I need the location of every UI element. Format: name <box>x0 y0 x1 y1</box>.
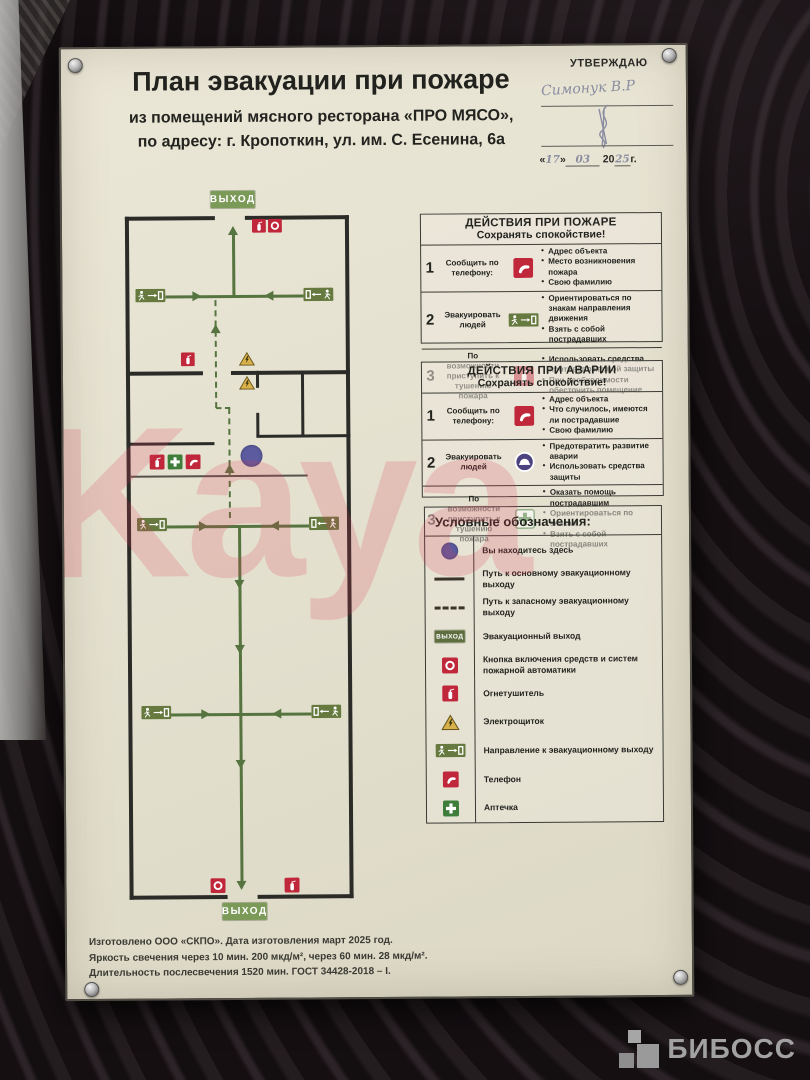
legend-row: Огнетушитель <box>426 678 662 708</box>
handwritten-day: 17 <box>545 154 560 166</box>
exit-sign-bottom: ВЫХОД <box>223 903 267 920</box>
legend-row: Кнопка включения средств и систем пожарн… <box>426 649 662 679</box>
bullet: Место возникновения пожара <box>540 256 658 278</box>
legend-row: Электрощиток <box>426 707 662 737</box>
counter-line <box>130 474 308 477</box>
page-title: План эвакуации при пожаре <box>91 64 551 98</box>
route-arrow-left <box>272 709 281 719</box>
exit-direction-sign <box>137 517 167 531</box>
wall-corner-highlight <box>0 0 46 740</box>
year-suffix: г. <box>630 153 636 165</box>
bullet: Что случилось, имеются ли пострадавшие <box>541 404 659 426</box>
biboss-logo-text: БИБОСС <box>667 1033 796 1065</box>
exit-sign-top: ВЫХОД <box>211 191 255 208</box>
legend-label: Эвакуационный выход <box>475 630 662 642</box>
wall-segment <box>125 216 215 221</box>
legend-row: ВЫХОД Эвакуационный выход <box>426 621 662 651</box>
row-label: Сообщить по телефону: <box>439 406 507 426</box>
row-label: Эвакуировать людей <box>440 452 508 472</box>
legend-label: Электрощиток <box>475 715 662 727</box>
legend-body: Вы находитесь здесь Путь к основному эва… <box>425 535 663 823</box>
bullet: Свою фамилию <box>540 277 658 288</box>
wall-segment <box>130 895 228 900</box>
exit-sign-icon: ВЫХОД <box>426 622 475 651</box>
handwritten-month: 03 <box>575 154 590 166</box>
wall-segment <box>231 370 350 374</box>
wall-segment <box>345 215 354 898</box>
row-bullets: Адрес объекта Место возникновения пожара… <box>540 246 661 288</box>
wall-segment <box>256 434 350 438</box>
bullet: Использовать средства защиты <box>542 461 660 483</box>
electrical-warning-icon <box>426 708 475 737</box>
biboss-watermark: БИБОСС <box>619 1030 796 1068</box>
approval-label: УТВЕРЖДАЮ <box>539 57 679 70</box>
dashed-route-line-icon <box>426 594 475 623</box>
legend-label: Направление к эвакуационному выходу <box>476 744 663 756</box>
biboss-logo-icon <box>619 1030 659 1068</box>
route-arrow-down <box>237 881 247 890</box>
fire-panel-row-2: 2 Эвакуировать людей Ориентироваться по … <box>421 291 661 350</box>
phone-icon <box>427 765 476 794</box>
wall-segment <box>301 371 304 435</box>
fire-alarm-button-icon <box>210 878 225 893</box>
electrical-warning-icon <box>239 352 255 366</box>
fire-alarm-button-icon <box>426 651 475 680</box>
legend-label: Путь к запасному эвакуационному выходу <box>475 595 662 618</box>
wall-segment <box>256 371 259 388</box>
exit-direction-sign-icon <box>507 312 541 326</box>
route-arrow-right <box>201 709 210 719</box>
fire-panel-subtitle: Сохранять спокойствие! <box>423 228 659 242</box>
screw-bottom-right <box>673 970 688 985</box>
wall-segment <box>125 217 134 900</box>
manufacturer-info: Изготовлено ООО «СКПО». Дата изготовлени… <box>89 932 519 982</box>
photo-of-evacuation-plan: План эвакуации при пожаре из помещений м… <box>0 0 810 1080</box>
fire-panel-header: ДЕЙСТВИЯ ПРИ ПОЖАРЕ Сохранять спокойстви… <box>421 213 661 246</box>
phone-icon <box>186 454 201 469</box>
evacuation-plan-poster: План эвакуации при пожаре из помещений м… <box>59 43 695 1001</box>
you-are-here-dot <box>425 536 474 565</box>
row-bullets: Предотвратить развитие аварии Использова… <box>541 441 662 483</box>
bullet: Ориентироваться по знакам направления дв… <box>540 293 658 325</box>
signature-flourish <box>591 103 617 149</box>
phone-icon <box>507 406 541 426</box>
exit-direction-sign <box>311 704 341 718</box>
fire-alarm-button-icon <box>268 219 282 233</box>
protective-helmet-icon <box>508 452 542 472</box>
fire-extinguisher-icon <box>181 352 195 366</box>
route-arrow-right <box>192 291 201 301</box>
exit-direction-sign <box>141 705 171 719</box>
row-bullets: Адрес объекта Что случилось, имеются ли … <box>541 394 662 436</box>
accident-panel-header: ДЕЙСТВИЯ ПРИ АВАРИИ Сохранять спокойстви… <box>422 361 662 394</box>
row-number: 2 <box>423 454 440 471</box>
phone-icon <box>506 258 540 278</box>
dashed-route-arrow-up <box>225 464 235 473</box>
legend-label: Вы находитесь здесь <box>474 544 661 556</box>
wall-segment <box>256 413 259 437</box>
dashed-route-line <box>214 300 217 408</box>
subtitle-line-1: из помещений мясного ресторана «ПРО МЯСО… <box>91 104 551 131</box>
legend-title: Условные обозначения: <box>425 506 661 537</box>
exit-direction-sign <box>309 516 339 530</box>
screw-bottom-left <box>84 982 99 997</box>
fire-actions-panel: ДЕЙСТВИЯ ПРИ ПОЖАРЕ Сохранять спокойстви… <box>420 212 663 344</box>
route-arrow-right <box>199 521 208 531</box>
legend-row: Путь к основному эвакуационному выходу <box>425 564 661 594</box>
page-subtitle: из помещений мясного ресторана «ПРО МЯСО… <box>91 104 551 155</box>
first-aid-kit-icon <box>427 794 476 823</box>
electrical-warning-icon <box>239 376 255 390</box>
approval-block: УТВЕРЖДАЮ Симонук В.Р «17»03 2025г. <box>539 57 679 70</box>
accident-actions-panel: ДЕЙСТВИЯ ПРИ АВАРИИ Сохранять спокойстви… <box>421 360 664 498</box>
legend-row: Путь к запасному эвакуационному выходу <box>426 592 662 622</box>
fire-extinguisher-icon <box>252 219 266 233</box>
route-arrow-down <box>235 645 245 654</box>
bullet: Предотвратить развитие аварии <box>541 441 659 463</box>
footer-line-3: Длительность послесвечения 1520 мин. ГОС… <box>89 963 519 982</box>
route-line <box>231 234 234 296</box>
handwritten-signature: Симонук В.Р <box>541 75 676 99</box>
accident-panel-row-1: 1 Сообщить по телефону: Адрес объекта Чт… <box>422 392 662 440</box>
solid-route-line-icon <box>425 565 474 594</box>
legend-row: Направление к эвакуационному выходу <box>427 735 663 765</box>
legend-label: Телефон <box>476 773 663 785</box>
fire-panel-row-1: 1 Сообщить по телефону: Адрес объекта Ме… <box>421 244 661 292</box>
legend-row: Аптечка <box>427 792 663 822</box>
subtitle-line-2: по адресу: г. Кропоткин, ул. им. С. Есен… <box>91 128 551 155</box>
first-aid-kit-icon <box>168 454 183 469</box>
year-prefix: 20 <box>603 153 615 165</box>
wall-segment <box>126 442 214 446</box>
you-are-here-dot <box>240 445 262 467</box>
bullet: Свою фамилию <box>541 425 659 436</box>
route-line <box>170 712 311 716</box>
legend-label: Кнопка включения средств и систем пожарн… <box>475 653 662 676</box>
dashed-route-arrow-up <box>211 324 221 333</box>
approval-date: «17»03 2025г. <box>539 153 679 167</box>
screw-top-left <box>68 58 83 73</box>
exit-direction-sign <box>135 288 165 302</box>
accident-panel-row-2: 2 Эвакуировать людей Предотвратить разви… <box>422 439 662 487</box>
wall-segment <box>126 371 203 375</box>
row-number: 1 <box>422 408 439 425</box>
route-line <box>165 294 303 298</box>
row-bullets: Ориентироваться по знакам направления дв… <box>540 293 661 346</box>
exit-direction-sign <box>303 287 333 301</box>
legend-label: Огнетушитель <box>475 687 662 699</box>
route-arrow-left <box>264 291 273 301</box>
fire-extinguisher-icon <box>426 679 475 708</box>
row-number: 2 <box>422 312 439 329</box>
row-label: Сообщить по телефону: <box>438 258 506 278</box>
exit-direction-sign-icon <box>427 736 476 765</box>
bullet: Взять с собой пострадавших <box>541 324 659 346</box>
legend-label: Аптечка <box>476 801 663 813</box>
route-arrow-left <box>270 521 279 531</box>
route-arrow-down <box>234 580 244 589</box>
row-number: 1 <box>421 260 438 277</box>
fire-extinguisher-icon <box>284 878 299 893</box>
handwritten-year: 25 <box>615 153 630 165</box>
legend-row: Телефон <box>427 764 663 794</box>
route-arrow-up <box>228 226 238 235</box>
accident-panel-subtitle: Сохранять спокойствие! <box>424 376 660 390</box>
legend-label: Путь к основному эвакуационному выходу <box>474 567 661 590</box>
row-label: Эвакуировать людей <box>439 310 507 330</box>
legend-panel: Условные обозначения: Вы находитесь здес… <box>424 505 664 824</box>
legend-row: Вы находитесь здесь <box>425 535 661 565</box>
wall-segment <box>258 894 354 899</box>
fire-extinguisher-icon <box>150 454 165 469</box>
route-arrow-down <box>236 760 246 769</box>
